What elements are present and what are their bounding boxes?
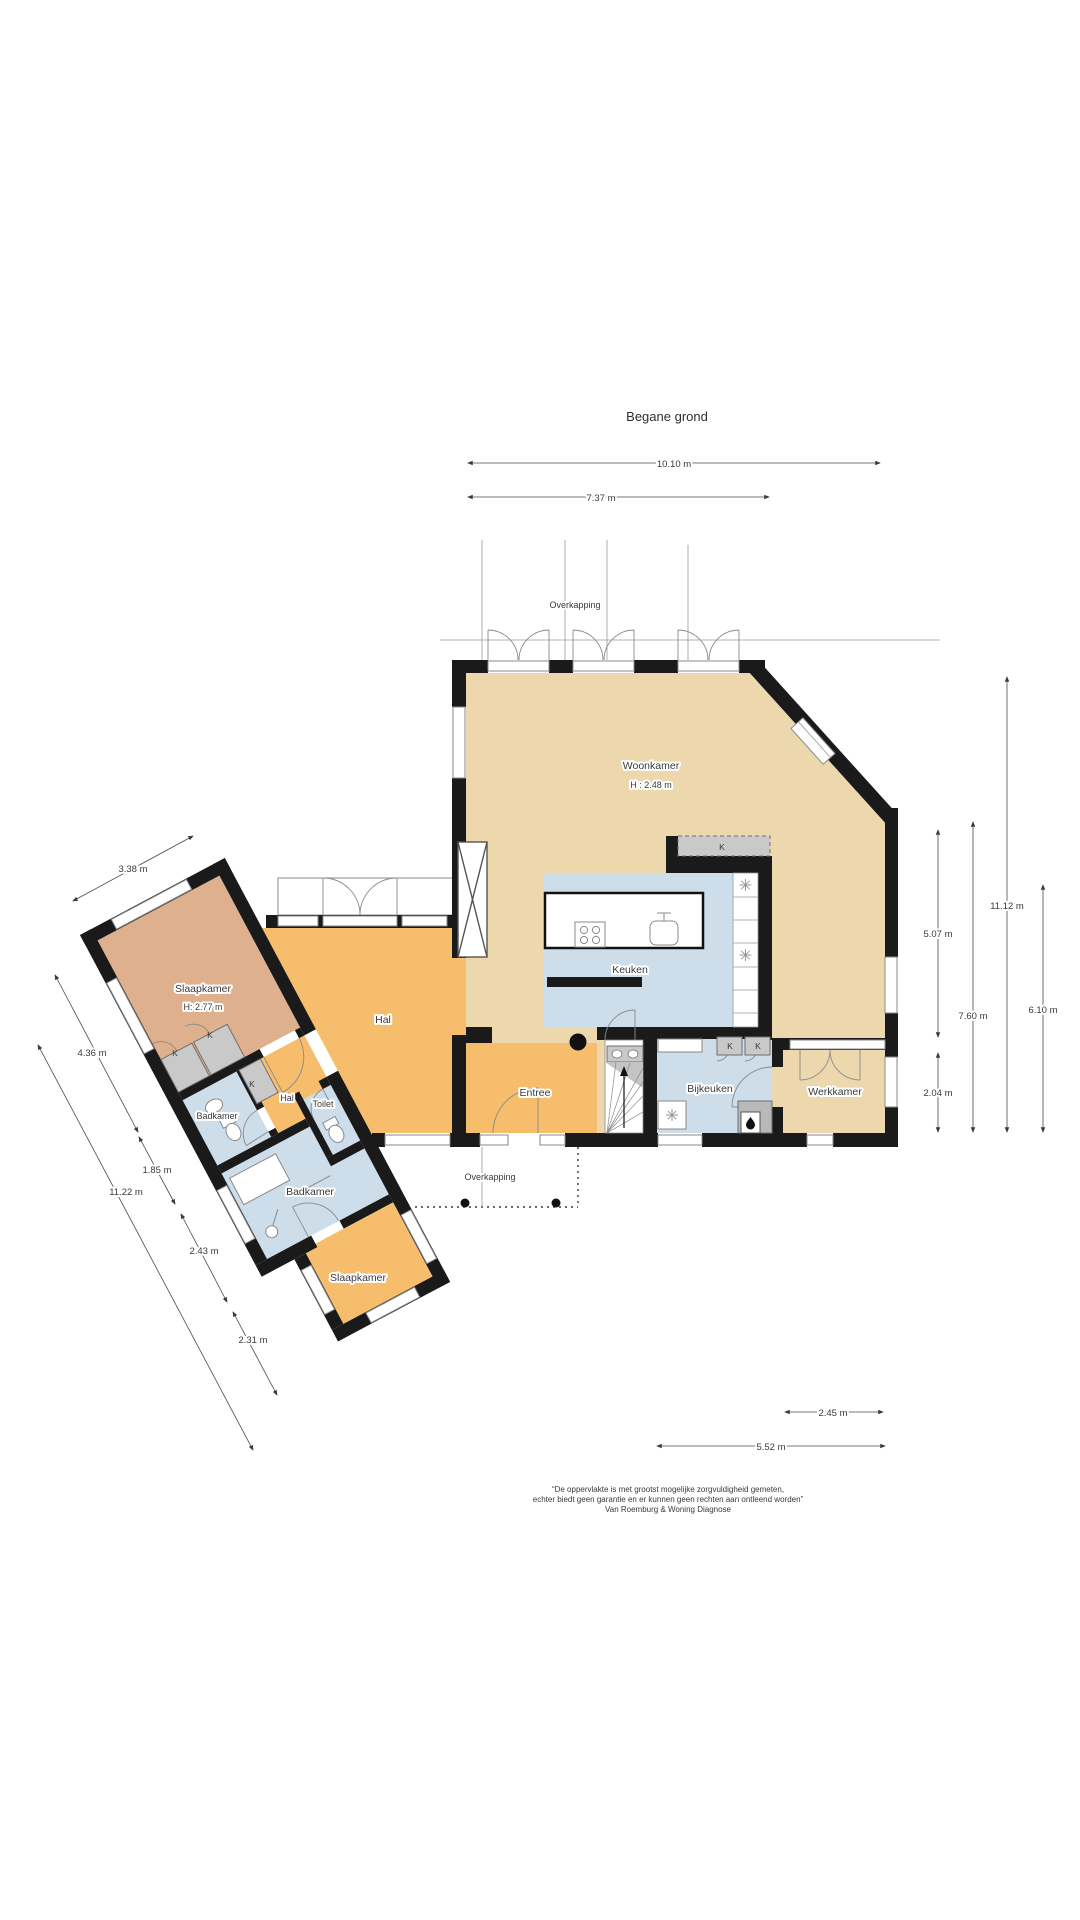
dim-6-10: 6.10 m	[1028, 1005, 1057, 1016]
dim-10-10: 10.10 m	[657, 459, 691, 470]
stairs	[605, 1040, 643, 1133]
closet-label: K	[172, 1048, 178, 1058]
toilet-label: Toilet	[312, 1099, 334, 1109]
slaapkamer-boven-label: Slaapkamer	[175, 983, 232, 995]
overkapping-top-label: Overkapping	[549, 600, 600, 610]
counter	[658, 1039, 702, 1052]
page-title: Begane grond	[626, 409, 708, 424]
closet-label: K	[755, 1041, 761, 1051]
footer-line-2: echter biedt geen garantie en er kunnen …	[533, 1495, 804, 1504]
dim-3-38: 3.38 m	[118, 864, 147, 875]
dim-5-52: 5.52 m	[756, 1442, 785, 1453]
footer-line-3: Van Roemburg & Woning Diagnose	[605, 1505, 732, 1514]
slaapkamer-onder-label: Slaapkamer	[330, 1272, 387, 1284]
dim-4-36: 4.36 m	[77, 1048, 106, 1059]
hal-label: Hal	[375, 1014, 391, 1026]
dim-5-07: 5.07 m	[923, 929, 952, 940]
floor-plan: Begane grond Overkapping	[0, 0, 1080, 1920]
entree-label: Entree	[520, 1087, 551, 1099]
dim-11-12: 11.12 m	[990, 901, 1024, 912]
closet-label: K	[727, 1041, 733, 1051]
overkapping-bottom-label: Overkapping	[464, 1172, 515, 1182]
dim-11-22: 11.22 m	[109, 1187, 143, 1198]
bijkeuken-label: Bijkeuken	[687, 1083, 733, 1095]
footer: “De oppervlakte is met grootst mogelijke…	[533, 1485, 804, 1514]
closet-label: K	[249, 1079, 255, 1089]
dim-1-85: 1.85 m	[142, 1165, 171, 1176]
dim-7-37: 7.37 m	[586, 493, 615, 504]
woonkamer-label: Woonkamer	[623, 760, 680, 772]
kitchen-island	[545, 893, 703, 948]
closet-label: K	[207, 1030, 213, 1040]
closet-label: K	[719, 842, 725, 852]
dim-7-60: 7.60 m	[958, 1011, 987, 1022]
wardrobe-icon	[458, 842, 487, 957]
footer-line-1: “De oppervlakte is met grootst mogelijke…	[552, 1485, 784, 1494]
floor-plan-page: Begane grond Overkapping	[0, 0, 1080, 1920]
dim-2-43: 2.43 m	[189, 1246, 218, 1257]
keuken-label: Keuken	[612, 964, 648, 976]
dim-2-45: 2.45 m	[818, 1408, 847, 1419]
slaapkamer-boven-height: H: 2.77 m	[183, 1002, 222, 1012]
werkkamer-label: Werkkamer	[808, 1086, 862, 1098]
dim-2-04: 2.04 m	[923, 1088, 952, 1099]
dim-2-31: 2.31 m	[238, 1335, 267, 1346]
woonkamer-height: H : 2.48 m	[630, 780, 672, 790]
hal-klein-label: Hal	[280, 1093, 294, 1103]
overkapping-top-outline	[440, 540, 940, 660]
badkamer-klein-label: Badkamer	[196, 1111, 237, 1121]
column-icon	[570, 1034, 587, 1051]
porch-outline	[278, 878, 457, 915]
badkamer-groot-label: Badkamer	[286, 1186, 334, 1198]
kitchen-counter-bar	[547, 977, 642, 987]
cooktop-icon	[575, 922, 605, 947]
